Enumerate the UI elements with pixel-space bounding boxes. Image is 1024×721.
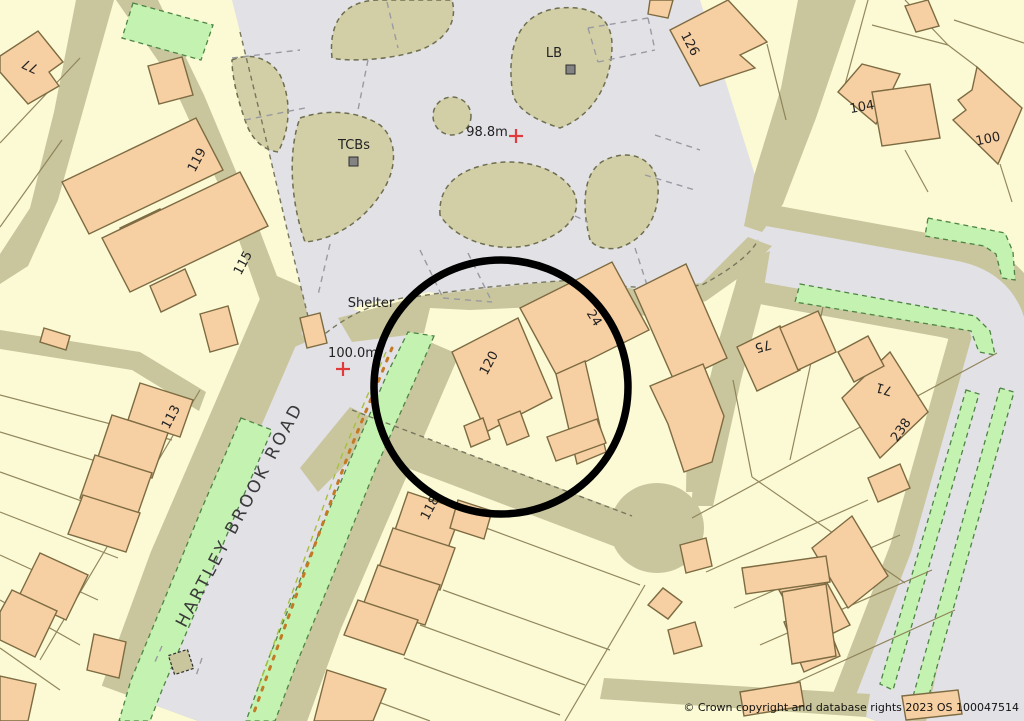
letter-box-label: LB — [546, 46, 562, 61]
map-viewport: TCBs LB 98.8m Shelter 100.0m HARTLEY BRO… — [0, 0, 1024, 721]
copyright-notice: © Crown copyright and database rights 20… — [683, 701, 1019, 714]
tcbs-label: TCBs — [337, 138, 370, 153]
spot-height-north-label: 98.8m — [466, 125, 508, 140]
os-map: TCBs LB 98.8m Shelter 100.0m HARTLEY BRO… — [0, 0, 1024, 721]
letter-box-symbol — [566, 65, 575, 74]
shelter-label: Shelter — [348, 296, 395, 311]
tcbs-symbol — [349, 157, 358, 166]
spot-height-south-label: 100.0m — [328, 346, 378, 361]
